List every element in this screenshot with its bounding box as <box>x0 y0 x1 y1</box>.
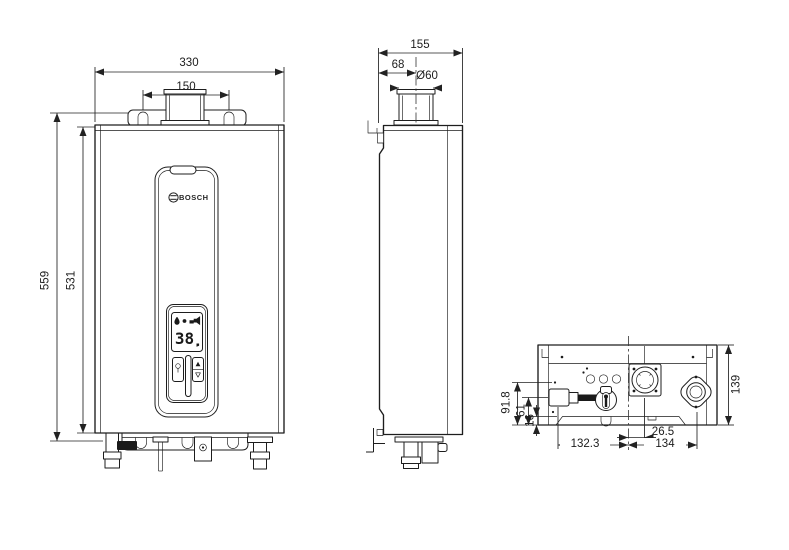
dim-overall-depth: 155 <box>390 39 450 52</box>
burner-icon <box>183 319 187 323</box>
cabinet-side <box>368 121 463 435</box>
dim-overall-width: 330 <box>159 57 219 70</box>
dim-cabinet-height: 531 <box>66 261 79 301</box>
vent-holes <box>586 375 620 383</box>
bottom-view <box>512 336 734 450</box>
wall-bracket-side <box>366 428 385 452</box>
drawing-linework <box>0 0 789 550</box>
center-bracket <box>195 437 212 461</box>
dim-inlet-height: 91.8 <box>501 381 514 425</box>
dim-flue-bracket-spacing: 150 <box>156 81 216 94</box>
technical-drawing: 330 150 559 531 155 68 Ø60 139 91.8 61 1… <box>0 0 789 550</box>
dim-right-span: 134 <box>644 438 686 451</box>
dim-overall-height: 559 <box>40 261 53 301</box>
water-connection-front <box>248 437 273 469</box>
front-view <box>50 67 284 471</box>
drain-pipe <box>153 437 168 471</box>
side-view <box>366 48 463 469</box>
temperature-value: 38 <box>173 329 196 348</box>
dim-flue-diameter: Ø60 <box>407 70 447 83</box>
bottom-connections-front <box>104 433 273 471</box>
dim-front-lip: 16 <box>525 406 538 436</box>
dim-left-span: 132.3 <box>560 438 610 451</box>
bosch-logo-text: BOSCH <box>179 193 209 202</box>
dim-bottom-depth: 139 <box>731 365 744 405</box>
